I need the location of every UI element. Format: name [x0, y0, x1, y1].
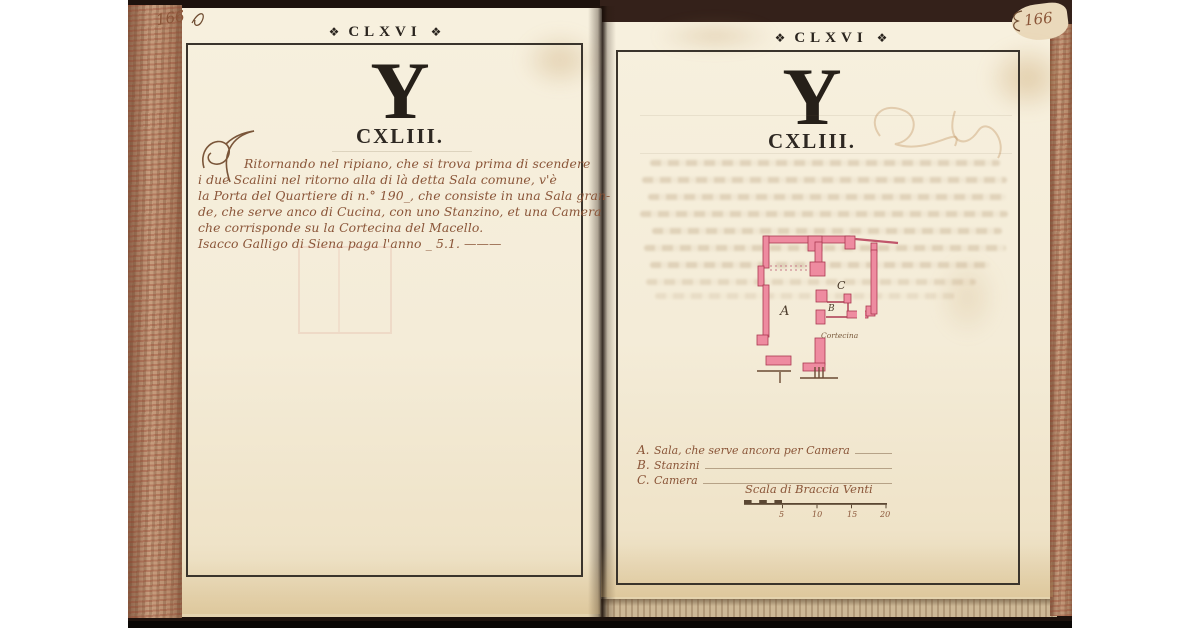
fore-edge-left — [128, 5, 182, 618]
legend-row: A. Sala, che serve ancora per Camera — [637, 442, 892, 457]
paragraph-line: la Porta del Quartiere di n.° 190_, che … — [198, 188, 596, 204]
legend-rule — [705, 468, 892, 469]
section-number-left: CXLIII. — [300, 124, 500, 149]
text-show-through — [642, 177, 1007, 183]
book-cover-edge — [600, 0, 1072, 24]
photo-bottom-shadow — [128, 621, 1072, 628]
floor-plan: A B C Cortecina — [740, 222, 920, 407]
scale-tick: 10 — [812, 510, 822, 519]
text-show-through — [648, 194, 1006, 200]
handwritten-paragraph: Ritornando nel ripiano, che si trova pri… — [198, 156, 596, 253]
plan-show-through — [298, 246, 392, 334]
scale-tick: 15 — [847, 510, 857, 519]
paragraph-line: Ritornando nel ripiano, che si trova pri… — [198, 156, 596, 172]
folio-roman-right: CLXVI — [794, 30, 867, 47]
scale-tick: 20 — [879, 510, 890, 519]
page-heading-right: ❖ CLXVI ❖ — [681, 30, 981, 47]
page-heading-left: ❖ CLXVI ❖ — [235, 24, 535, 41]
drop-letter-left: Y — [350, 50, 450, 132]
scale-caption: Scala di Braccia Venti — [745, 482, 873, 496]
folio-number-right: 166 — [1023, 9, 1053, 30]
room-label-b: B — [827, 304, 835, 314]
scale-tick: 5 — [779, 510, 784, 519]
legend-key: B. — [637, 458, 654, 472]
plan-legend: A. Sala, che serve ancora per Camera B. … — [637, 442, 892, 487]
room-label-c: C — [837, 279, 846, 292]
floret-ornament-icon: ❖ — [775, 31, 786, 45]
flourish-show-through — [860, 96, 1020, 176]
ink-flourish — [190, 7, 208, 29]
paragraph-line: che corrisponde su la Cortecina del Mace… — [198, 220, 596, 236]
manuscript-photo: 166 166 ❖ CLXVI ❖ ❖ CLXVI ❖ Y CXLIII. Y … — [0, 0, 1200, 628]
page-stack-bottom-edge — [601, 599, 1057, 617]
folio-roman-left: CLXVI — [348, 24, 421, 41]
paragraph-line: de, che serve anco di Cucina, con uno St… — [198, 204, 596, 220]
legend-rule — [855, 453, 892, 454]
legend-key: C. — [637, 473, 654, 487]
drop-letter-right: Y — [762, 56, 862, 138]
scale-bar: 5 10 15 20 — [741, 497, 891, 521]
legend-key: A. — [637, 443, 654, 457]
floret-ornament-icon: ❖ — [877, 31, 888, 45]
book-gutter — [588, 6, 616, 617]
legend-row: B. Stanzini — [637, 457, 892, 472]
legend-label: Camera — [654, 474, 698, 487]
room-label-a: A — [779, 304, 789, 319]
guide-line — [332, 151, 472, 152]
legend-label: Sala, che serve ancora per Camera — [654, 444, 850, 457]
plan-annotation: Cortecina — [821, 331, 858, 340]
fore-edge-right — [1050, 24, 1072, 616]
floret-ornament-icon: ❖ — [431, 25, 442, 39]
paragraph-line: i due Scalini nel ritorno alla di là det… — [198, 172, 596, 188]
paragraph-line: Isacco Galligo di Siena paga l'anno _ 5.… — [198, 236, 596, 252]
floret-ornament-icon: ❖ — [329, 25, 340, 39]
legend-label: Stanzini — [654, 459, 700, 472]
text-show-through — [640, 211, 1008, 217]
